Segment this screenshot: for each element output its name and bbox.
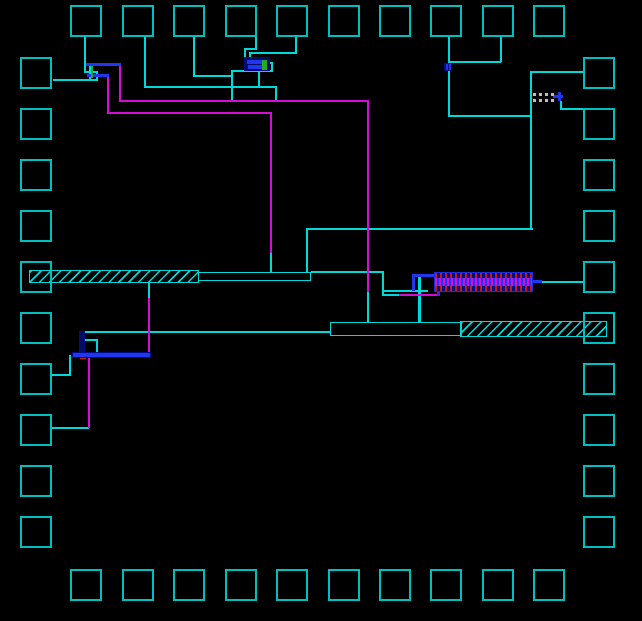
bond-pad-top-9[interactable] — [482, 5, 514, 37]
metal1-wire[interactable] — [532, 71, 584, 73]
bond-pad-right-10[interactable] — [583, 516, 615, 548]
bond-pad-left-10[interactable] — [20, 516, 52, 548]
metal1-wire[interactable] — [53, 79, 98, 81]
metal1-wire[interactable] — [52, 374, 70, 376]
bond-pad-top-1[interactable] — [70, 5, 102, 37]
metal1-wire[interactable] — [52, 427, 89, 429]
bond-pad-right-7[interactable] — [583, 363, 615, 395]
bond-pad-top-7[interactable] — [379, 5, 411, 37]
metal1-wire[interactable] — [231, 70, 233, 102]
metal2-wire[interactable] — [412, 274, 415, 291]
metal1-wire[interactable] — [258, 70, 260, 87]
metal1-wire[interactable] — [367, 291, 369, 324]
bond-pad-left-4[interactable] — [20, 210, 52, 242]
resistor-bar-left-extension[interactable] — [198, 272, 311, 281]
poly-resistor-row — [533, 99, 557, 102]
resistor-bar-right-extension[interactable] — [330, 322, 462, 336]
bond-pad-top-8[interactable] — [430, 5, 462, 37]
bond-pad-right-6[interactable] — [583, 312, 615, 344]
poly-wire[interactable] — [91, 66, 93, 78]
bond-pad-top-6[interactable] — [328, 5, 360, 37]
bond-pad-bottom-7[interactable] — [379, 569, 411, 601]
hatched-resistor-bar-left[interactable] — [29, 270, 199, 283]
bond-pad-bottom-5[interactable] — [276, 569, 308, 601]
metal1-wire[interactable] — [306, 228, 533, 230]
metal2-bus-bar[interactable] — [72, 352, 151, 358]
bond-pad-top-5[interactable] — [276, 5, 308, 37]
metal1-wire[interactable] — [448, 115, 531, 117]
bond-pad-right-4[interactable] — [583, 210, 615, 242]
bond-pad-bottom-8[interactable] — [430, 569, 462, 601]
layout-canvas[interactable] — [0, 0, 642, 621]
via-contact[interactable] — [444, 63, 452, 71]
metal1-wire[interactable] — [306, 228, 308, 273]
metal1-wire[interactable] — [448, 61, 501, 63]
metal1-wire[interactable] — [69, 355, 71, 376]
bond-pad-bottom-1[interactable] — [70, 569, 102, 601]
bond-pad-top-3[interactable] — [173, 5, 205, 37]
metal1-wire[interactable] — [84, 37, 86, 73]
bond-pad-right-2[interactable] — [583, 108, 615, 140]
comb-finger-field — [435, 278, 532, 286]
metal3-wire[interactable] — [119, 100, 369, 102]
metal1-wire[interactable] — [193, 75, 233, 77]
metal1-wire[interactable] — [418, 277, 421, 324]
bond-pad-right-1[interactable] — [583, 57, 615, 89]
bond-pad-left-6[interactable] — [20, 312, 52, 344]
bond-pad-left-1[interactable] — [20, 57, 52, 89]
metal3-wire[interactable] — [119, 66, 121, 101]
bond-pad-top-10[interactable] — [533, 5, 565, 37]
bond-pad-left-5[interactable] — [20, 261, 52, 293]
bond-pad-left-2[interactable] — [20, 108, 52, 140]
metal1-wire[interactable] — [448, 37, 450, 64]
metal3-wire[interactable] — [399, 294, 439, 296]
metal1-wire[interactable] — [144, 37, 146, 88]
bond-pad-right-9[interactable] — [583, 465, 615, 497]
metal1-wire[interactable] — [311, 271, 383, 273]
bond-pad-left-8[interactable] — [20, 414, 52, 446]
device-poly-gate — [262, 60, 267, 70]
bond-pad-left-9[interactable] — [20, 465, 52, 497]
metal1-wire[interactable] — [382, 290, 428, 292]
metal2-wire[interactable] — [558, 92, 561, 101]
bond-pad-bottom-3[interactable] — [173, 569, 205, 601]
bond-pad-right-5[interactable] — [583, 261, 615, 293]
bond-pad-left-7[interactable] — [20, 363, 52, 395]
bond-pad-right-3[interactable] — [583, 159, 615, 191]
metal1-wire[interactable] — [530, 71, 532, 229]
bond-pad-right-8[interactable] — [583, 414, 615, 446]
bond-pad-top-4[interactable] — [225, 5, 257, 37]
metal3-wire[interactable] — [107, 77, 109, 113]
bond-pad-bottom-9[interactable] — [482, 569, 514, 601]
metal3-wire[interactable] — [107, 112, 272, 114]
bond-pad-top-2[interactable] — [122, 5, 154, 37]
metal1-wire[interactable] — [270, 252, 272, 273]
metal1-wire[interactable] — [382, 271, 384, 296]
metal1-wire[interactable] — [193, 37, 195, 77]
metal1-wire[interactable] — [560, 108, 584, 110]
metal1-wire[interactable] — [448, 71, 450, 116]
bond-pad-bottom-10[interactable] — [533, 569, 565, 601]
metal3-wire[interactable] — [367, 100, 369, 292]
bond-pad-bottom-2[interactable] — [122, 569, 154, 601]
interdigitated-comb-device[interactable] — [434, 272, 533, 292]
bond-pad-bottom-4[interactable] — [225, 569, 257, 601]
bond-pad-bottom-6[interactable] — [328, 569, 360, 601]
metal1-wire[interactable] — [500, 37, 502, 62]
transistor-device[interactable] — [244, 57, 270, 71]
metal3-wire[interactable] — [270, 112, 272, 253]
metal1-wire[interactable] — [382, 294, 400, 296]
metal1-wire[interactable] — [540, 281, 584, 283]
metal3-wire[interactable] — [88, 357, 90, 428]
poly-resistor-row — [533, 93, 557, 96]
metal1-wire[interactable] — [249, 52, 297, 54]
bond-pad-left-3[interactable] — [20, 159, 52, 191]
metal3-wire[interactable] — [148, 298, 150, 355]
comb-bottom-rail — [435, 286, 532, 291]
metal1-wire[interactable] — [81, 331, 330, 333]
